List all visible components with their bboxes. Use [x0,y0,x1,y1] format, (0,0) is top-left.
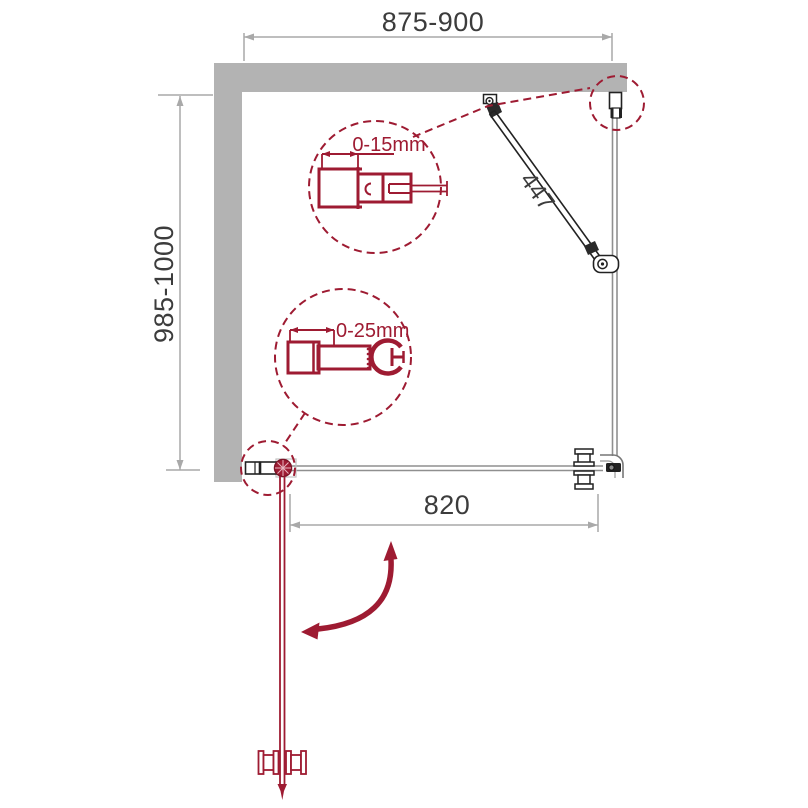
dimension-top-width [244,33,612,61]
dim-arrow-left [244,34,254,41]
dim-arrow-left [290,522,300,529]
dimension-top-width-label: 875-900 [382,7,485,37]
swing-arrowhead-up [384,541,398,561]
fixed-glass-panel [613,118,618,456]
pivot-profile-adjustment-label: 0-25mm [336,320,409,342]
swing-arrowhead-left [301,623,320,640]
callout-leaders [241,76,644,495]
wall-top [214,63,627,92]
dim-arrow-right [602,34,612,41]
door-hinge-knob [574,449,594,489]
wall-profile-top [610,93,622,119]
dimension-left-depth-label: 985-1000 [149,225,179,343]
detail-circle-pivot-profile: 0-25mm [275,289,411,425]
leader-pivot [283,413,305,446]
door-pivot [275,460,292,477]
wall-left [214,63,242,482]
door-bottom-tip [278,784,288,800]
door-swing-arrow [301,541,398,640]
dim-arrow-up [177,96,184,106]
door-handle [259,751,307,774]
corner-joint [600,455,623,478]
support-bar [484,95,619,273]
door-glass-closed [292,466,603,471]
detail-circle-wall-profile: 0-15mm [309,121,447,253]
drawing-canvas: 875-900 985-1000 820 [0,0,808,808]
dim-arrow-down [177,460,184,470]
technical-drawing: 875-900 985-1000 820 [0,0,808,808]
dimension-door-width-label: 820 [424,490,471,520]
support-bar-length-label: 447 [514,167,559,215]
dim-arrow-right [588,522,598,529]
